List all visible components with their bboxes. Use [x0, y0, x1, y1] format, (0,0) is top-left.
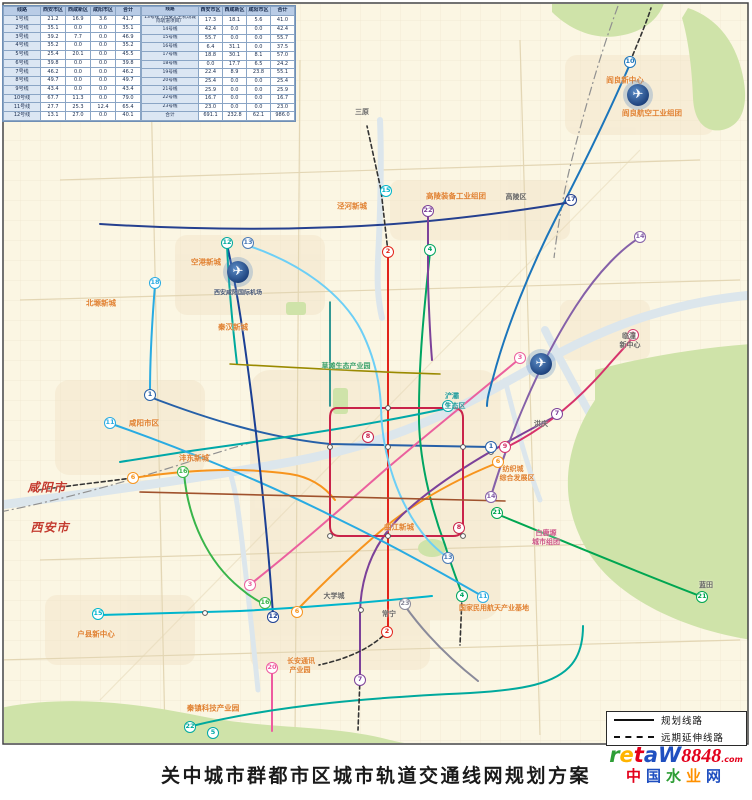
length-cell: 8.9 [223, 69, 247, 78]
table-row: 7号线46.20.00.046.2 [4, 68, 141, 77]
table-row: 16号线6.431.10.037.5 [142, 43, 295, 52]
line-name-cell: 18号线 [142, 60, 199, 69]
table-row: 6号线39.80.00.039.8 [4, 59, 141, 68]
length-cell: 39.2 [41, 33, 66, 42]
table-row: 4号线35.20.00.035.2 [4, 42, 141, 51]
watermark-letter: e [620, 745, 634, 766]
dashed-line-sample [614, 736, 654, 738]
length-cell: 0.0 [91, 42, 116, 51]
line-name-cell: 6号线 [4, 59, 41, 68]
column-header: 线路 [142, 7, 199, 16]
length-cell: 6.4 [199, 43, 223, 52]
length-cell: 0.0 [223, 103, 247, 112]
length-cell: 17.7 [223, 60, 247, 69]
length-cell: 12.4 [91, 103, 116, 112]
length-cell: 0.0 [247, 34, 271, 43]
watermark-cn-letter: 网 [706, 767, 726, 785]
column-header: 合计 [116, 7, 141, 16]
length-cell: 35.2 [41, 42, 66, 51]
legend-label: 规划线路 [661, 713, 703, 727]
length-cell: 55.7 [271, 34, 295, 43]
length-cell: 5.6 [247, 15, 271, 26]
legend-item-planned: 规划线路 [614, 713, 739, 727]
table-row: 3号线39.27.70.046.9 [4, 33, 141, 42]
line-name-cell: 19号线 [142, 69, 199, 78]
line-name-cell: 22号线 [142, 94, 199, 103]
table-row: 22号线16.70.00.016.7 [142, 94, 295, 103]
column-header: 西咸新区 [66, 7, 91, 16]
length-cell: 0.0 [91, 77, 116, 86]
length-cell: 20.1 [66, 50, 91, 59]
watermark-cn-name: 中国水业网 [602, 769, 750, 784]
length-cell: 0.0 [91, 85, 116, 94]
column-header: 线路 [4, 7, 41, 16]
length-cell: 0.0 [223, 77, 247, 86]
length-cell: 24.2 [271, 60, 295, 69]
length-cell: 0.0 [199, 60, 223, 69]
watermark-suffix: .com [721, 756, 743, 764]
length-cell: 0.0 [247, 86, 271, 95]
length-cell: 27.7 [41, 103, 66, 112]
length-cell: 43.4 [41, 85, 66, 94]
map-title: 关中城市群都市区城市轨道交通线网规划方案 [161, 761, 591, 788]
column-header: 西咸新区 [223, 7, 247, 16]
length-cell: 35.2 [116, 42, 141, 51]
line-name-cell: 15号线 [142, 34, 199, 43]
length-cell: 18.1 [223, 15, 247, 26]
line-name-cell: 9号线 [4, 85, 41, 94]
length-cell: 0.0 [66, 85, 91, 94]
length-cell: 31.1 [223, 43, 247, 52]
watermark-cn-letter: 水 [666, 767, 686, 785]
length-cell: 0.0 [91, 94, 116, 103]
legend-box: 规划线路 远期延伸线路 [606, 711, 747, 746]
table-lines-1-12: 线路西安市区西咸新区咸阳市区合计1号线21.216.93.641.72号线35.… [3, 6, 141, 121]
length-cell: 0.0 [247, 77, 271, 86]
length-cell: 79.0 [116, 94, 141, 103]
length-cell: 46.2 [116, 68, 141, 77]
length-cell: 21.2 [41, 15, 66, 24]
length-cell: 6.5 [247, 60, 271, 69]
watermark-letter: W [658, 745, 681, 766]
length-cell: 8.1 [247, 52, 271, 61]
length-cell: 65.4 [116, 103, 141, 112]
table-row: 14号线42.40.00.042.4 [142, 26, 295, 35]
length-cell: 39.8 [116, 59, 141, 68]
length-cell: 22.4 [199, 69, 223, 78]
line-name-cell: 5号线 [4, 50, 41, 59]
length-cell: 25.4 [41, 50, 66, 59]
length-cell: 62.1 [247, 112, 271, 121]
length-cell: 986.0 [271, 112, 295, 121]
length-cell: 0.0 [66, 59, 91, 68]
length-cell: 0.0 [66, 42, 91, 51]
line-name-cell: 8号线 [4, 77, 41, 86]
table-row: 9号线43.40.00.043.4 [4, 85, 141, 94]
watermark-number: 8848 [681, 746, 721, 766]
length-cell: 45.5 [116, 50, 141, 59]
length-cell: 11.3 [66, 94, 91, 103]
watermark-letter: a [644, 745, 658, 766]
length-cell: 23.0 [271, 103, 295, 112]
length-cell: 39.8 [41, 59, 66, 68]
length-cell: 27.0 [66, 112, 91, 121]
length-cell: 18.8 [199, 52, 223, 61]
watermark-cn-letter: 国 [646, 767, 666, 785]
line-name-cell: 合计 [142, 112, 199, 121]
length-cell: 0.0 [247, 43, 271, 52]
watermark-letter: r [609, 745, 619, 766]
length-cell: 0.0 [91, 50, 116, 59]
line-name-cell: 20号线 [142, 77, 199, 86]
table-row: 17号线18.830.18.157.0 [142, 52, 295, 61]
table-lines-13-23: 线路西安市区西咸新区咸阳市区合计13号线（西安北至机场城际轨道项目）17.318… [141, 6, 295, 121]
line-length-table: 线路西安市区西咸新区咸阳市区合计1号线21.216.93.641.72号线35.… [2, 5, 296, 122]
table-row: 20号线25.40.00.025.4 [142, 77, 295, 86]
length-cell: 41.7 [116, 15, 141, 24]
table-row: 1号线21.216.93.641.7 [4, 15, 141, 24]
length-cell: 55.7 [199, 34, 223, 43]
line-name-cell: 2号线 [4, 24, 41, 33]
length-cell: 0.0 [247, 94, 271, 103]
table-row: 线路西安市区西咸新区咸阳市区合计 [142, 7, 295, 16]
length-cell: 0.0 [223, 34, 247, 43]
legend-item-extension: 远期延伸线路 [614, 730, 739, 744]
line-name-cell: 10号线 [4, 94, 41, 103]
column-header: 西安市区 [199, 7, 223, 16]
length-cell: 25.3 [66, 103, 91, 112]
line-name-cell: 4号线 [4, 42, 41, 51]
solid-line-sample [614, 719, 654, 721]
length-cell: 43.4 [116, 85, 141, 94]
length-cell: 13.1 [41, 112, 66, 121]
length-cell: 42.4 [271, 26, 295, 35]
table-row: 12号线13.127.00.040.1 [4, 112, 141, 121]
length-cell: 16.7 [271, 94, 295, 103]
length-cell: 3.6 [91, 15, 116, 24]
length-cell: 691.1 [199, 112, 223, 121]
length-cell: 35.1 [41, 24, 66, 33]
length-cell: 40.1 [116, 112, 141, 121]
length-cell: 49.7 [116, 77, 141, 86]
length-cell: 23.8 [247, 69, 271, 78]
line-name-cell: 12号线 [4, 112, 41, 121]
column-header: 咸阳市区 [91, 7, 116, 16]
line-name-cell: 3号线 [4, 33, 41, 42]
length-cell: 0.0 [91, 59, 116, 68]
length-cell: 57.0 [271, 52, 295, 61]
line-name-cell: 23号线 [142, 103, 199, 112]
table-row: 5号线25.420.10.045.5 [4, 50, 141, 59]
length-cell: 0.0 [66, 77, 91, 86]
table-row: 18号线0.017.76.524.2 [142, 60, 295, 69]
length-cell: 49.7 [41, 77, 66, 86]
length-cell: 0.0 [223, 86, 247, 95]
length-cell: 16.7 [199, 94, 223, 103]
table-row: 10号线67.711.30.079.0 [4, 94, 141, 103]
line-name-cell: 21号线 [142, 86, 199, 95]
length-cell: 67.7 [41, 94, 66, 103]
column-header: 咸阳市区 [247, 7, 271, 16]
table-row: 13号线（西安北至机场城际轨道项目）17.318.15.641.0 [142, 15, 295, 26]
length-cell: 0.0 [66, 24, 91, 33]
length-cell: 0.0 [91, 68, 116, 77]
length-cell: 0.0 [91, 33, 116, 42]
table-row: 2号线35.10.00.035.1 [4, 24, 141, 33]
length-cell: 25.4 [199, 77, 223, 86]
table-row: 11号线27.725.312.465.4 [4, 103, 141, 112]
length-cell: 16.9 [66, 15, 91, 24]
length-cell: 0.0 [91, 24, 116, 33]
length-cell: 0.0 [247, 103, 271, 112]
length-cell: 41.0 [271, 15, 295, 26]
watermark-logo: retaW8848.com [609, 745, 743, 766]
watermark-cn-letter: 中 [626, 767, 646, 785]
length-cell: 30.1 [223, 52, 247, 61]
length-cell: 35.1 [116, 24, 141, 33]
watermark: retaW8848.com 中国水业网 [602, 745, 750, 784]
length-cell: 23.0 [199, 103, 223, 112]
length-cell: 0.0 [66, 68, 91, 77]
line-name-cell: 17号线 [142, 52, 199, 61]
table-row: 21号线25.90.00.025.9 [142, 86, 295, 95]
line-name-cell: 1号线 [4, 15, 41, 24]
line-name-cell: 7号线 [4, 68, 41, 77]
length-cell: 0.0 [223, 94, 247, 103]
length-cell: 0.0 [247, 26, 271, 35]
table-row: 15号线55.70.00.055.7 [142, 34, 295, 43]
length-cell: 232.8 [223, 112, 247, 121]
length-cell: 25.9 [199, 86, 223, 95]
line-name-cell: 11号线 [4, 103, 41, 112]
length-cell: 0.0 [91, 112, 116, 121]
line-name-cell: 13号线（西安北至机场城际轨道项目） [142, 15, 199, 26]
table-row: 23号线23.00.00.023.0 [142, 103, 295, 112]
table-row: 8号线49.70.00.049.7 [4, 77, 141, 86]
column-header: 合计 [271, 7, 295, 16]
length-cell: 25.4 [271, 77, 295, 86]
watermark-letter: t [634, 745, 644, 766]
legend-label: 远期延伸线路 [661, 730, 724, 744]
watermark-cn-letter: 业 [686, 767, 706, 785]
length-cell: 0.0 [223, 26, 247, 35]
length-cell: 37.5 [271, 43, 295, 52]
length-cell: 42.4 [199, 26, 223, 35]
length-cell: 55.1 [271, 69, 295, 78]
length-cell: 25.9 [271, 86, 295, 95]
column-header: 西安市区 [41, 7, 66, 16]
table-row: 合计691.1232.862.1986.0 [142, 112, 295, 121]
table-row: 19号线22.48.923.855.1 [142, 69, 295, 78]
length-cell: 7.7 [66, 33, 91, 42]
table-row: 线路西安市区西咸新区咸阳市区合计 [4, 7, 141, 16]
line-name-cell: 16号线 [142, 43, 199, 52]
length-cell: 46.9 [116, 33, 141, 42]
length-cell: 46.2 [41, 68, 66, 77]
length-cell: 17.3 [199, 15, 223, 26]
line-name-cell: 14号线 [142, 26, 199, 35]
